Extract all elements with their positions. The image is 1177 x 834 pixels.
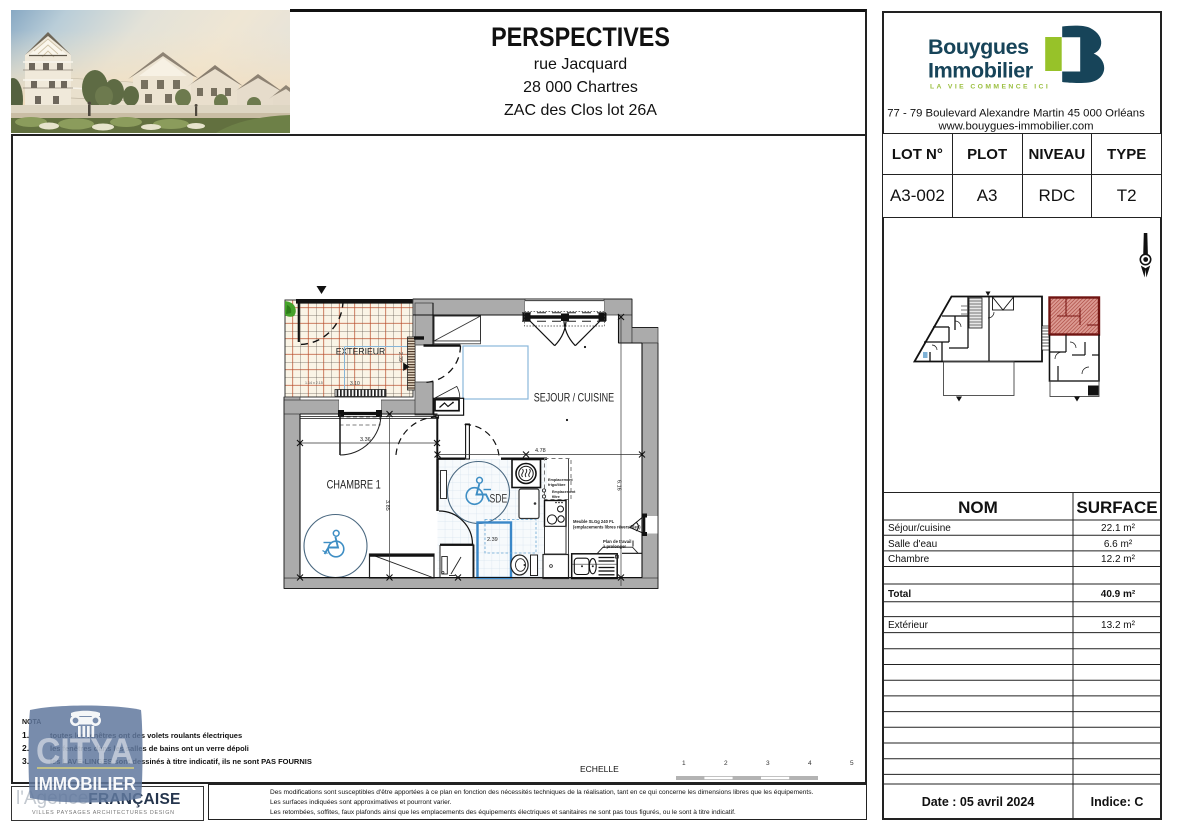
svg-text:SDE: SDE	[490, 492, 508, 506]
svg-text:12.2 m²: 12.2 m²	[1101, 554, 1136, 565]
svg-text:Extérieur: Extérieur	[888, 620, 929, 631]
svg-text:4.78: 4.78	[535, 448, 546, 454]
svg-text:(emplacements libres réversibl: (emplacements libres réversibles)	[573, 525, 641, 530]
svg-text:2.39: 2.39	[397, 352, 403, 362]
svg-text:LA VIE COMMENCE ICI: LA VIE COMMENCE ICI	[930, 84, 1050, 91]
svg-text:1.14 x 2.15: 1.14 x 2.15	[305, 381, 323, 385]
svg-text:13.2 m²: 13.2 m²	[1101, 620, 1136, 631]
svg-text:Bouygues: Bouygues	[928, 35, 1029, 59]
svg-text:www.bouygues-immobilier.com: www.bouygues-immobilier.com	[937, 121, 1093, 133]
svg-text:22.1 m²: 22.1 m²	[1101, 523, 1136, 534]
svg-text:SURFACE: SURFACE	[1076, 498, 1157, 517]
svg-text:2.39: 2.39	[487, 537, 498, 543]
svg-text:Emplacement: Emplacement	[552, 490, 576, 494]
svg-text:EXTERIEUR: EXTERIEUR	[336, 347, 386, 357]
svg-text:3.85: 3.85	[384, 500, 390, 511]
svg-text:Chambre: Chambre	[888, 554, 930, 565]
svg-text:frigo/libre: frigo/libre	[548, 483, 566, 487]
svg-text:à prolonger: à prolonger	[603, 544, 626, 549]
svg-text:77 - 79 Boulevard Alexandre Ma: 77 - 79 Boulevard Alexandre Martin 45 00…	[887, 108, 1145, 120]
svg-text:Indice: C: Indice: C	[1091, 795, 1144, 809]
svg-text:3.10: 3.10	[350, 381, 360, 387]
svg-text:40.9 m²: 40.9 m²	[1101, 589, 1136, 600]
svg-text:Emplacement: Emplacement	[548, 478, 573, 482]
svg-text:filtre: filtre	[552, 495, 560, 499]
svg-text:6.6 m²: 6.6 m²	[1104, 539, 1133, 550]
svg-text:NOM: NOM	[958, 498, 998, 517]
svg-text:Total: Total	[888, 589, 911, 600]
svg-text:Séjour/cuisine: Séjour/cuisine	[888, 523, 951, 534]
svg-text:Meuble SLGg 240 FL: Meuble SLGg 240 FL	[573, 519, 615, 524]
svg-text:Immobilier: Immobilier	[928, 59, 1034, 83]
svg-text:Salle d'eau: Salle d'eau	[888, 539, 937, 550]
svg-text:3.36: 3.36	[360, 437, 371, 443]
svg-text:SEJOUR / CUISINE: SEJOUR / CUISINE	[534, 390, 615, 404]
svg-text:Date : 05 avril 2024: Date : 05 avril 2024	[922, 795, 1035, 809]
svg-text:6.16: 6.16	[616, 480, 622, 491]
svg-text:CHAMBRE 1: CHAMBRE 1	[327, 478, 381, 492]
